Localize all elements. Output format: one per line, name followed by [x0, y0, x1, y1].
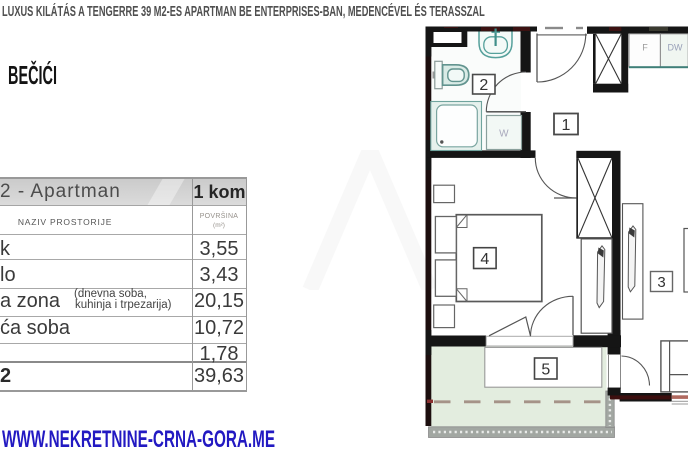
- svg-text:4: 4: [480, 251, 489, 268]
- svg-text:2: 2: [479, 77, 488, 94]
- svg-text:5: 5: [541, 361, 550, 378]
- svg-text:DW: DW: [668, 43, 683, 53]
- svg-text:1: 1: [562, 117, 571, 134]
- svg-text:F: F: [642, 43, 648, 53]
- svg-text:W: W: [499, 129, 509, 140]
- svg-text:3: 3: [657, 274, 665, 291]
